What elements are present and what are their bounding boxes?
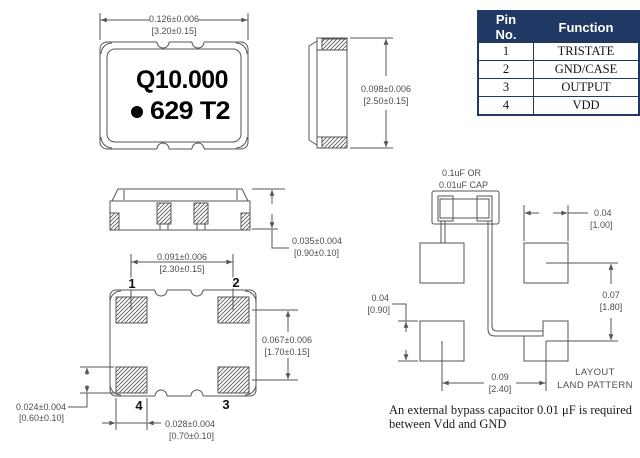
dim-pad-span-y-mm: [1.70±0.15] (265, 347, 310, 357)
dim-pad-width-inch: 0.028±0.004 (165, 419, 215, 429)
land-pad-1 (420, 243, 464, 283)
dim-land-pad-width-mm: [1.00] (590, 220, 613, 230)
pin-function: TRISTATE (534, 43, 640, 61)
part-marking-datecode: 629 T2 (150, 97, 230, 125)
dim-land-pad-height-inch: 0.04 (371, 293, 389, 303)
dim-land-pitch-y-inch: 0.07 (602, 290, 620, 300)
part-marking-frequency: Q10.000 (136, 66, 228, 94)
dim-land-pitch-x-mm: [2.40] (489, 384, 512, 394)
dim-body-width-inch: 0.126±0.006 (149, 14, 199, 24)
table-row: 1 TRISTATE (478, 43, 639, 61)
pin-table-header-pin: Pin No. (478, 11, 534, 43)
pin-table-header-function: Function (534, 11, 640, 43)
pin-function: GND/CASE (534, 61, 640, 79)
dim-pad-span-x-mm: [2.30±0.15] (160, 264, 205, 274)
table-row: 2 GND/CASE (478, 61, 639, 79)
land-pattern-label-line1: LAYOUT (575, 367, 615, 378)
pad-3-label: 3 (222, 397, 229, 412)
dim-land-pad-height-mm: [0.90] (367, 305, 390, 315)
dim-pad-width-mm: [0.70±0.10] (169, 431, 214, 441)
table-row: 4 VDD (478, 97, 639, 116)
dim-body-length-inch: 0.098±0.006 (361, 84, 411, 94)
dim-pad-span-y: 0.067±0.006 [1.70±0.15] (252, 310, 312, 380)
pad-4-label: 4 (135, 398, 143, 413)
trace-right-outer (488, 221, 525, 336)
dim-pad-span-x-inch: 0.091±0.006 (157, 252, 207, 262)
dim-body-width: 0.126±0.006 [3.20±0.15] (100, 13, 248, 40)
dim-body-width-mm: [3.20±0.15] (152, 26, 197, 36)
dim-body-height-inch: 0.035±0.004 (292, 236, 342, 246)
dim-land-pitch-x: 0.09 [2.40] (442, 341, 546, 394)
land-pattern: 0.1uF OR 0.01uF CAP (420, 168, 568, 361)
dim-land-pad-height: 0.04 [0.90] (367, 293, 418, 361)
cap-pad-right (477, 196, 492, 221)
dim-pad-width: 0.028±0.004 [0.70±0.10] (102, 398, 215, 441)
pin-number: 3 (478, 79, 534, 97)
dim-pad-height: 0.024±0.004 [0.60±0.10] (16, 367, 114, 423)
dim-land-pad-width: 0.04 [1.00] (524, 205, 613, 241)
pin-number: 2 (478, 61, 534, 79)
dim-body-length-mm: [2.50±0.15] (364, 96, 409, 106)
pad-1-label: 1 (128, 276, 135, 291)
dim-body-height-mm: [0.90±0.10] (294, 248, 339, 258)
cap-label-line1: 0.1uF OR (442, 168, 482, 178)
front-view (110, 189, 250, 230)
pin-number: 1 (478, 43, 534, 61)
pin-function-table: Pin No. Function 1 TRISTATE 2 GND/CASE 3… (477, 10, 640, 116)
pin-function: VDD (534, 97, 640, 116)
dim-pad-height-mm: [0.60±0.10] (19, 413, 64, 423)
marking-dot-icon (131, 106, 143, 118)
dim-land-pitch-x-inch: 0.09 (491, 372, 509, 382)
table-row: 3 OUTPUT (478, 79, 639, 97)
pin-number: 4 (478, 97, 534, 116)
dim-pad-height-inch: 0.024±0.004 (16, 402, 66, 412)
datasheet-page: Q10.000 629 T2 0.126±0.006 [3.20±0.15] 0… (0, 0, 640, 458)
cap-label-line2: 0.01uF CAP (439, 180, 488, 190)
dim-land-pitch-y-mm: [1.80] (600, 302, 623, 312)
pad-2-label: 2 (232, 275, 239, 290)
side-view (309, 38, 347, 148)
bottom-view (110, 290, 256, 396)
pin-function: OUTPUT (534, 79, 640, 97)
dim-body-height: 0.035±0.004 [0.90±0.10] (252, 189, 342, 258)
cap-body (440, 199, 489, 218)
land-pattern-label-line2: LAND PATTERN (557, 380, 633, 391)
trace-right-inner (492, 221, 543, 331)
dim-body-length: 0.098±0.006 [2.50±0.15] (350, 38, 411, 148)
pad-3 (218, 367, 249, 393)
dim-land-pad-width-inch: 0.04 (594, 208, 612, 218)
top-view: Q10.000 629 T2 (100, 42, 248, 149)
dim-land-pitch-y: 0.07 [1.80] (546, 263, 622, 341)
dim-pad-span-y-inch: 0.067±0.006 (262, 335, 312, 345)
bypass-capacitor-note: An external bypass capacitor 0.01 μF is … (389, 403, 632, 431)
pad-4 (116, 367, 147, 393)
